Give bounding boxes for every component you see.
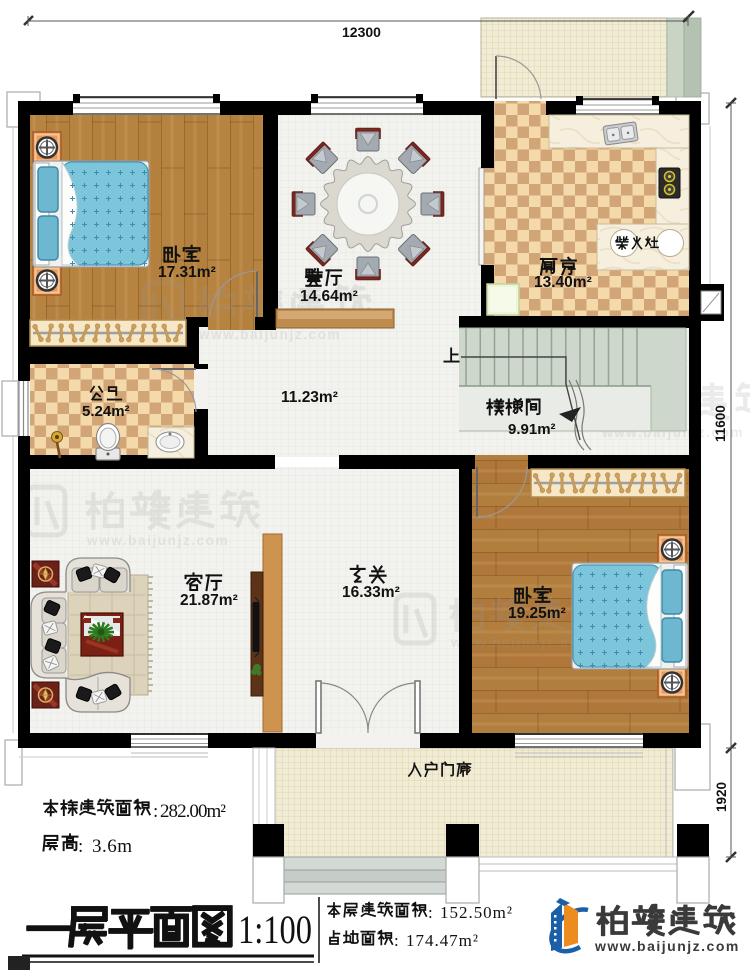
svg-text:www.baijunjz.com: www.baijunjz.com: [594, 938, 740, 954]
svg-text:11.23m²: 11.23m²: [281, 389, 338, 406]
svg-text:www.baijunjz.com: www.baijunjz.com: [86, 533, 229, 548]
svg-text:12300: 12300: [342, 24, 381, 40]
svg-text:11600: 11600: [713, 405, 728, 442]
svg-text:282.00m²: 282.00m²: [160, 801, 226, 822]
svg-text:19.25m²: 19.25m²: [508, 605, 566, 622]
svg-text:3.6m: 3.6m: [92, 836, 132, 857]
svg-text::: :: [153, 801, 158, 822]
svg-text:1:100: 1:100: [238, 907, 312, 952]
svg-text:13.40m²: 13.40m²: [534, 274, 592, 291]
svg-text:5.24m²: 5.24m²: [82, 403, 130, 420]
svg-text:21.87m²: 21.87m²: [180, 592, 238, 609]
svg-text:1920: 1920: [714, 782, 729, 812]
svg-text:14.64m²: 14.64m²: [300, 288, 358, 305]
svg-text:16.33m²: 16.33m²: [342, 584, 400, 601]
svg-text:152.50m²: 152.50m²: [440, 903, 512, 922]
svg-text::: :: [394, 931, 399, 950]
svg-text:17.31m²: 17.31m²: [158, 264, 216, 281]
svg-text::: :: [78, 836, 83, 857]
svg-text::: :: [428, 903, 433, 922]
svg-text:174.47m²: 174.47m²: [406, 931, 478, 950]
svg-text:9.91m²: 9.91m²: [508, 421, 556, 438]
